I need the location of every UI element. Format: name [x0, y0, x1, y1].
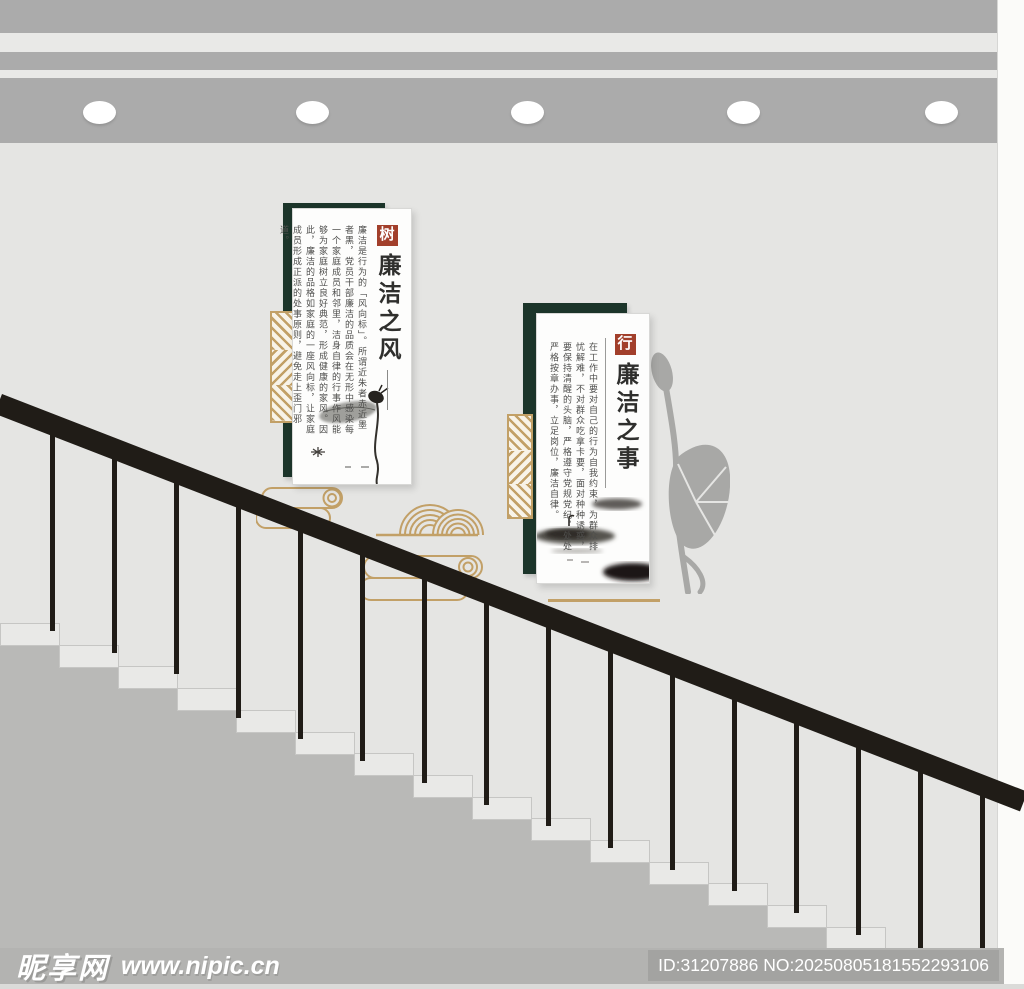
railing-baluster — [484, 597, 489, 805]
arch-cloud-icon — [376, 495, 484, 539]
wall-right-edge — [997, 0, 1024, 989]
image-id-badge: ID:31207886 NO:20250805181552293106 — [648, 950, 999, 981]
stair-step — [531, 818, 591, 841]
ceiling-band — [0, 0, 997, 33]
railing-baluster — [298, 525, 303, 740]
railing-baluster — [50, 428, 55, 631]
railing-baluster — [546, 621, 551, 827]
stair-step — [354, 753, 414, 776]
recessed-light — [296, 101, 329, 124]
banner-body-text: 在工作中要对自己的行为自我约束，为群众排忧解难，不对群众吃拿卡要，面对种种诱惑，… — [547, 342, 599, 557]
railing-baluster — [732, 693, 737, 891]
ceiling-strip — [0, 33, 997, 52]
stair-culture-wall-design: 树 廉洁之风 廉洁是行为的「风向标」。所谓近朱者赤近墨者黑，党员干部廉洁的品质会… — [0, 0, 1024, 989]
stair-step — [649, 862, 709, 885]
railing-baluster — [174, 477, 179, 675]
watermark-bar: 昵享网 www.nipic.cn ID:31207886 NO:20250805… — [0, 948, 1004, 984]
nipic-logo: 昵享网 — [16, 945, 109, 987]
banner-lianjie-zhishi: 行 廉洁之事 在工作中要对自己的行为自我约束，为群众排忧解难，不对群众吃拿卡要，… — [536, 313, 650, 584]
ceiling-band — [0, 52, 997, 70]
stair-step — [236, 710, 296, 733]
lattice-ornament-icon — [507, 414, 533, 519]
railing-baluster — [670, 669, 675, 870]
seal-stamp: 行 — [615, 334, 636, 355]
banner-title-column: 树 廉洁之风 — [374, 225, 400, 470]
banner-title: 廉洁之风 — [370, 253, 404, 365]
title-divider — [605, 338, 606, 488]
stair-step — [708, 883, 768, 906]
stair-step — [826, 927, 886, 950]
railing-baluster — [856, 741, 861, 935]
seal-stamp: 树 — [377, 225, 398, 246]
railing-baluster — [608, 645, 613, 848]
stair-step — [0, 623, 60, 646]
ceiling-light-band — [0, 78, 997, 143]
stair-step — [295, 732, 355, 755]
railing-baluster — [422, 573, 427, 783]
lotus-silhouette-icon — [638, 352, 730, 594]
recessed-light — [727, 101, 760, 124]
railing-baluster — [112, 453, 117, 653]
stair-step — [472, 797, 532, 820]
ceiling-strip — [0, 70, 997, 78]
title-divider — [387, 370, 388, 410]
stair-step — [177, 688, 237, 711]
banner-lianjie-zhifeng: 树 廉洁之风 廉洁是行为的「风向标」。所谓近朱者赤近墨者黑，党员干部廉洁的品质会… — [292, 208, 412, 485]
banner-title-column: 行 廉洁之事 — [612, 334, 638, 569]
stair-step — [59, 645, 119, 668]
ceiling — [0, 0, 997, 143]
banner-title: 廉洁之事 — [608, 362, 642, 474]
gold-underline — [548, 599, 660, 602]
recessed-light — [83, 101, 116, 124]
banner-body-text: 廉洁是行为的「风向标」。所谓近朱者赤近墨者黑，党员干部廉洁的品质会在无形中感染每… — [277, 225, 368, 440]
railing-baluster — [236, 501, 241, 718]
recessed-light — [511, 101, 544, 124]
stair-step — [413, 775, 473, 798]
stair-step — [118, 666, 178, 689]
stair-step — [767, 905, 827, 928]
recessed-light — [925, 101, 958, 124]
stair-step — [590, 840, 650, 863]
railing-baluster — [918, 765, 923, 956]
bottom-edge-strip — [0, 984, 1024, 989]
railing-baluster — [794, 717, 799, 913]
nipic-url: www.nipic.cn — [121, 952, 280, 981]
